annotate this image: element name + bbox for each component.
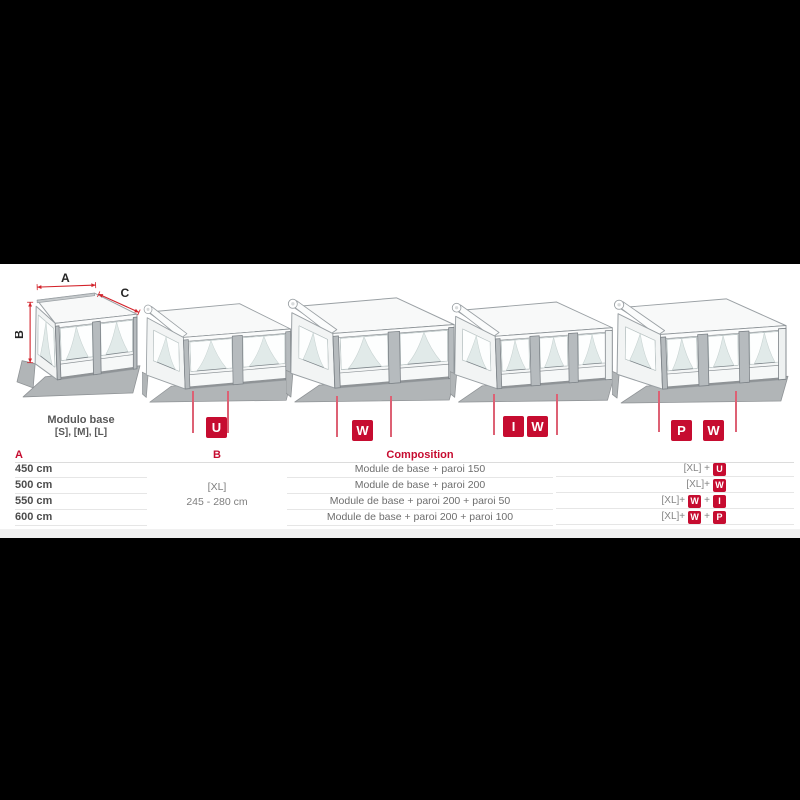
cell-composition: Module de base + paroi 200 bbox=[287, 478, 553, 494]
frame-post bbox=[739, 331, 750, 383]
frame-post bbox=[232, 335, 243, 384]
cell-code: [XL]+ W + I bbox=[556, 494, 794, 509]
roller-end-cap-center bbox=[455, 306, 458, 309]
base-module-caption-line1: Modulo base bbox=[14, 414, 148, 426]
dimension-label-b: B bbox=[15, 330, 26, 339]
cell-size-a: 600 cm bbox=[15, 510, 147, 526]
awning-illustration-450 bbox=[142, 284, 294, 404]
ground-mat bbox=[286, 370, 293, 397]
page: { "colors": { "accent": "#c60c30", "mark… bbox=[0, 0, 800, 800]
pointer-line bbox=[735, 391, 737, 432]
code-badge-p: P bbox=[713, 511, 726, 524]
cell-composition: Module de base + paroi 150 bbox=[287, 462, 553, 478]
table-row: 600 cm Module de base + paroi 200 + paro… bbox=[0, 510, 800, 526]
panel-badge-u: U bbox=[206, 417, 227, 438]
dimension-arrowhead bbox=[37, 285, 41, 289]
cell-code: [XL]+ W + P bbox=[556, 510, 794, 525]
frame-post bbox=[388, 331, 400, 383]
awning-illustration-550 bbox=[450, 282, 616, 404]
cell-code: [XL] + U bbox=[556, 462, 794, 477]
code-prefix: [XL]+ bbox=[662, 496, 686, 506]
dimension-label-c: C bbox=[120, 286, 129, 300]
table-row: 450 cm Module de base + paroi 150 [XL] +… bbox=[0, 462, 800, 478]
cell-size-a: 550 cm bbox=[15, 494, 147, 510]
code-badge-u: U bbox=[713, 463, 726, 476]
code-badge-w: W bbox=[713, 479, 726, 492]
table-header-b: B bbox=[147, 449, 287, 461]
code-plus: + bbox=[704, 496, 710, 506]
pointer-line bbox=[658, 391, 660, 432]
frame-post bbox=[92, 321, 101, 375]
pointer-line bbox=[493, 394, 495, 435]
cell-b-merged: [XL] 245 - 280 cm bbox=[147, 480, 287, 510]
cell-composition: Module de base + paroi 200 + paroi 100 bbox=[287, 510, 553, 526]
code-prefix: [XL]+ bbox=[662, 512, 686, 522]
table-row: 500 cm Module de base + paroi 200 [XL]+ … bbox=[0, 478, 800, 494]
code-badge-w: W bbox=[688, 511, 701, 524]
ground-mat bbox=[142, 372, 148, 397]
dimension-arrowhead bbox=[91, 283, 95, 287]
panel-badge-w: W bbox=[703, 420, 724, 441]
frame-post bbox=[530, 336, 540, 386]
cell-code: [XL]+ W bbox=[556, 478, 794, 493]
awning-illustration-500 bbox=[286, 277, 458, 404]
pointer-line bbox=[227, 391, 229, 433]
base-module-caption: Modulo base [S], [M], [L] bbox=[14, 414, 148, 438]
frame-post bbox=[698, 334, 709, 386]
base-module-caption-line2: [S], [M], [L] bbox=[14, 427, 148, 438]
cell-b-range: 245 - 280 cm bbox=[147, 495, 287, 510]
dimension-label-a: A bbox=[61, 271, 70, 285]
code-prefix: [XL]+ bbox=[686, 480, 710, 490]
cell-size-a: 500 cm bbox=[15, 478, 147, 494]
ground-mat bbox=[17, 361, 35, 388]
awning-illustration-base-module: ABC bbox=[15, 270, 146, 404]
roller-end-cap-center bbox=[147, 308, 150, 311]
panel-badge-w: W bbox=[352, 420, 373, 441]
pointer-line bbox=[336, 396, 338, 437]
ground-mat bbox=[612, 371, 619, 398]
code-badge-i: I bbox=[713, 495, 726, 508]
table-row: 550 cm Module de base + paroi 200 + paro… bbox=[0, 494, 800, 510]
code-badge-w: W bbox=[688, 495, 701, 508]
table-header-a: A bbox=[15, 449, 23, 461]
content-band: ABC Modulo base [S], [M], [L] U W I W P … bbox=[0, 264, 800, 538]
cell-size-a: 450 cm bbox=[15, 462, 147, 478]
dimension-line bbox=[37, 285, 95, 287]
roller-end-cap-center bbox=[617, 303, 620, 306]
panel-badge-w: W bbox=[527, 416, 548, 437]
roller-end-cap-center bbox=[291, 302, 294, 305]
frame-post bbox=[133, 317, 137, 369]
pointer-line bbox=[192, 391, 194, 433]
frame-post bbox=[778, 328, 785, 379]
code-plus: + bbox=[704, 512, 710, 522]
panel-badge-i: I bbox=[503, 416, 524, 437]
pointer-line bbox=[390, 396, 392, 437]
table-header-composition: Composition bbox=[287, 449, 553, 461]
frame-post bbox=[568, 333, 578, 383]
cell-b-size-class: [XL] bbox=[147, 480, 287, 495]
cell-composition: Module de base + paroi 200 + paroi 50 bbox=[287, 494, 553, 510]
dimension-arrowhead bbox=[28, 302, 32, 306]
table-footer-strip bbox=[0, 529, 800, 538]
pointer-line bbox=[556, 394, 558, 435]
code-prefix: [XL] + bbox=[684, 464, 710, 474]
awning-illustration-600 bbox=[612, 278, 790, 405]
ground-mat bbox=[450, 372, 457, 398]
panel-badge-p: P bbox=[671, 420, 692, 441]
